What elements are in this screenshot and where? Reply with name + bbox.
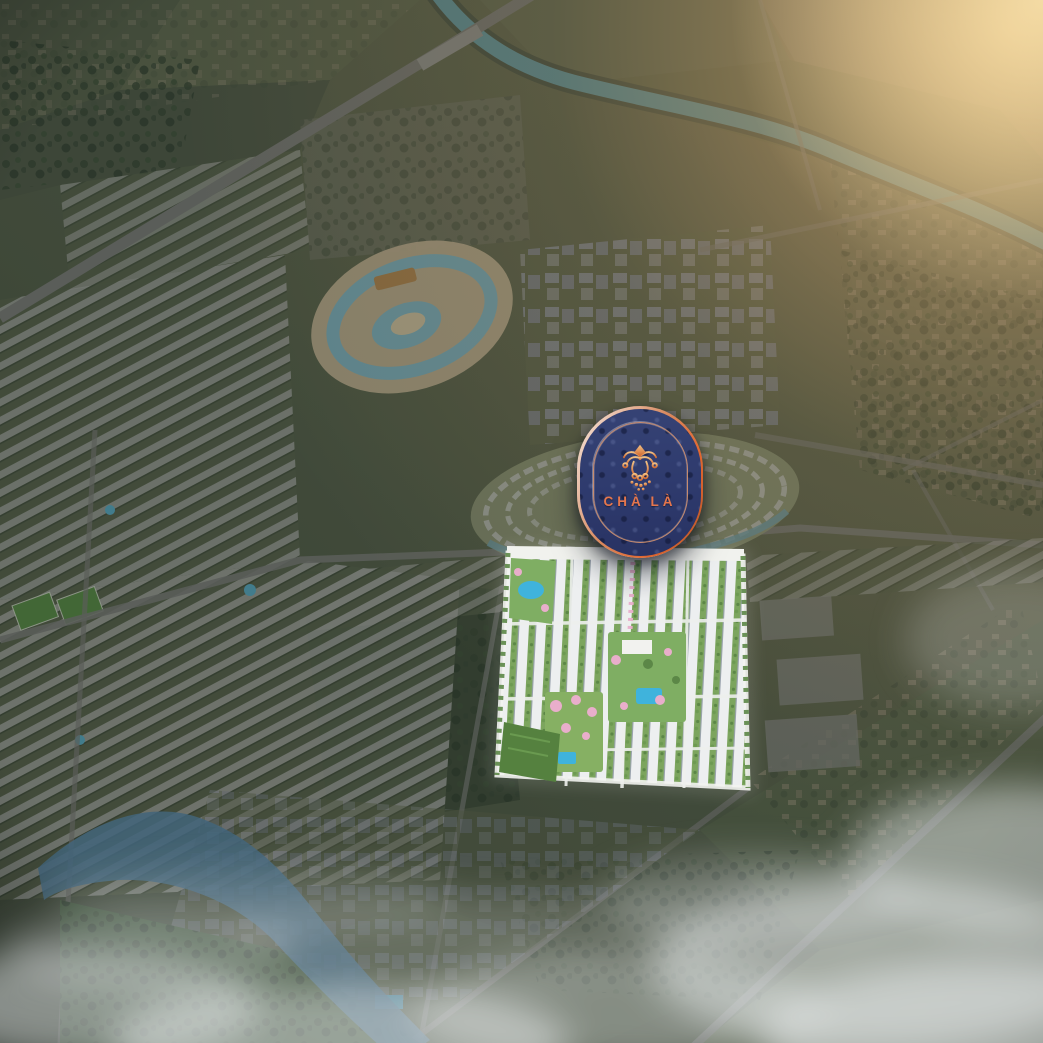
featured-parcel[interactable] [497, 546, 748, 788]
project-logo-badge[interactable]: CHÀ LÀ [577, 406, 703, 558]
amenity-central-park [608, 632, 686, 722]
date-palm-icon [620, 443, 660, 493]
logo-badge-field: CHÀ LÀ [580, 409, 701, 556]
amenity-nw-pool [509, 558, 556, 624]
masterplan-hero: CHÀ LÀ [0, 0, 1043, 1043]
project-wordmark: CHÀ LÀ [580, 494, 701, 509]
aerial-scene [0, 0, 1043, 1043]
